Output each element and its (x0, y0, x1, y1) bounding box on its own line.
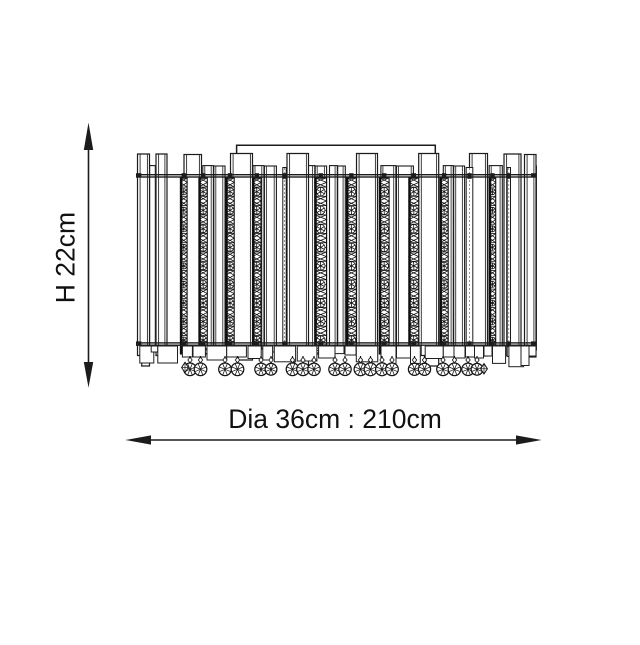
svg-text:H 22cm: H 22cm (50, 212, 80, 303)
svg-text:Dia 36cm : 210cm: Dia 36cm : 210cm (228, 404, 442, 434)
